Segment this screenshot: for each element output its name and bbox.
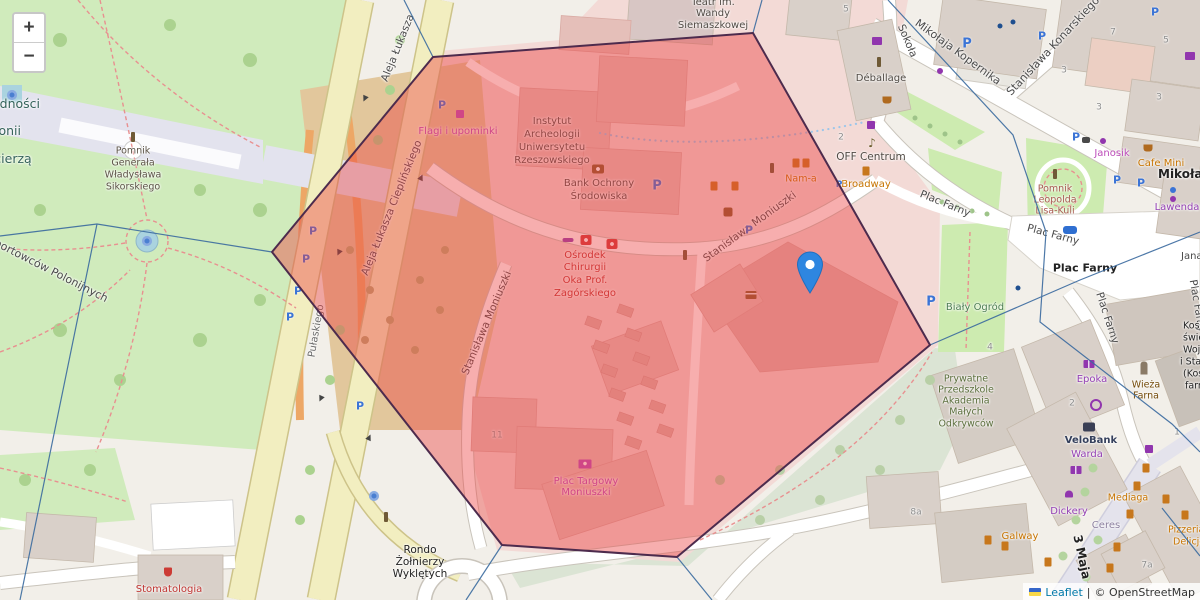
- restaurant-label-pizzeria: Delicje: [1173, 537, 1200, 547]
- house-number: 3: [1156, 94, 1162, 103]
- restaurant-icon: [1143, 464, 1150, 473]
- shop-label-flagi: Flagi i upominki: [418, 127, 497, 137]
- parking-icon: P: [309, 225, 317, 238]
- kindergarten-label: Przedszkole: [938, 385, 994, 395]
- fast-food-icon: [1134, 482, 1141, 491]
- attribution-bar: Leaflet | © OpenStreetMap: [1023, 583, 1200, 600]
- monument-icon: [384, 512, 388, 522]
- church-label: Wojciecha: [1183, 345, 1200, 355]
- fountain-icon: [7, 90, 17, 100]
- wine-bar-icon: [1107, 564, 1114, 573]
- shop-label-epoka: Epoka: [1077, 375, 1108, 385]
- roundabout-label: Żołnierzy: [396, 557, 445, 568]
- map-canvas[interactable]: edności lonii cierzą Pomnik Generała Wła…: [0, 0, 1200, 600]
- zoom-out-button[interactable]: −: [14, 42, 44, 71]
- restaurant-label-pizzeria: Pizzeria: [1168, 525, 1200, 535]
- bank-icon: [592, 165, 604, 174]
- poi-dot-icon: [1016, 286, 1021, 291]
- marketplace-icon: [579, 460, 592, 469]
- monument-icon: [770, 163, 774, 173]
- openstreetmap-link[interactable]: © OpenStreetMap: [1094, 586, 1195, 599]
- monument-icon: [877, 57, 881, 67]
- cafe-icon: [883, 97, 892, 104]
- shop-label-deballage: Déballage: [856, 74, 907, 84]
- pub-icon: [1127, 510, 1134, 519]
- first-aid-icon: [607, 239, 618, 249]
- dentist-icon: [164, 568, 172, 577]
- monument-icon: [131, 132, 135, 142]
- roundabout-label: Wyklętych: [393, 569, 448, 580]
- shop-label-dickery: Dickery: [1050, 507, 1088, 517]
- bookshop-icon: [1071, 466, 1082, 474]
- tower-label: Wieża: [1132, 380, 1160, 390]
- monument-icon: [1053, 169, 1057, 179]
- dentist-label: Stomatologia: [136, 585, 202, 595]
- parking-icon: P: [438, 99, 446, 112]
- house-number: 4: [987, 344, 993, 353]
- house-number: 3: [1061, 67, 1067, 76]
- bar-icon: [1163, 495, 1170, 504]
- poi-dot-icon: [1011, 20, 1016, 25]
- clinic-label: Ośrodek: [564, 251, 605, 261]
- clinic-label: Zagórskiego: [554, 289, 616, 299]
- park-name-fragment: cierzą: [0, 153, 32, 166]
- institute-label: Rzeszowskiego: [514, 156, 590, 166]
- parking-icon: P: [745, 224, 753, 237]
- fountain-icon: [142, 236, 152, 246]
- shop-label-warda: Warda: [1071, 450, 1103, 460]
- kindergarten-label: Akademia: [942, 396, 989, 406]
- parcel-locker-icon: [724, 208, 733, 217]
- parking-icon: P: [294, 285, 302, 298]
- shop-label-lawenda: Lawenda: [1155, 203, 1200, 213]
- garden-label-bialyogrod: Biały Ogród: [946, 303, 1004, 313]
- parking-icon: P: [652, 179, 662, 194]
- house-number: 8a: [910, 509, 921, 518]
- camera-shop-icon: [1082, 137, 1090, 143]
- market-label: Moniuszki: [561, 488, 610, 498]
- parking-icon: P: [1038, 30, 1046, 43]
- monument-label: Pomnik: [116, 146, 151, 156]
- venue-label-ceres: Ceres: [1092, 521, 1120, 531]
- parking-icon: P: [1072, 131, 1080, 144]
- monument-label-lisakuli: Lisa-Kuli: [1035, 206, 1074, 216]
- clothes-shop-icon: [1185, 52, 1195, 60]
- poi-dot-icon: [1170, 187, 1176, 193]
- church-label: i Stanisława: [1180, 357, 1200, 367]
- pub-label-broadway: Broadway: [841, 180, 891, 190]
- shop-dot-icon: [937, 68, 943, 74]
- optician-glasses-icon: [563, 238, 574, 242]
- market-label: Plac Targowy: [554, 477, 619, 487]
- restaurant-icon: [711, 182, 718, 191]
- institute-label: Instytut: [533, 117, 572, 127]
- ukraine-flag-icon: [1029, 588, 1041, 596]
- church-label: (Kościół: [1183, 369, 1200, 379]
- tower-label: Farna: [1133, 391, 1159, 401]
- parking-icon: P: [962, 37, 972, 52]
- shop-label-janosik: Janosik: [1094, 149, 1129, 159]
- clinic-label: Oka Prof.: [563, 276, 608, 286]
- monument-label: Władysława: [105, 170, 162, 180]
- tower-icon: [1141, 362, 1148, 375]
- street-label-mikolaja: Mikołaja: [1158, 168, 1200, 180]
- leaflet-link[interactable]: Leaflet: [1045, 586, 1082, 599]
- fountain-icon: [369, 491, 379, 501]
- restaurant-label-nama: Nam-a: [785, 174, 816, 184]
- shop-icon: [1145, 445, 1153, 453]
- street-label-jana: Jana: [1181, 252, 1200, 262]
- bookshop-icon: [1084, 360, 1095, 368]
- kindergarten-label: Prywatne: [944, 374, 988, 384]
- institute-label: Archeologii: [524, 130, 580, 140]
- zoom-control[interactable]: + −: [12, 12, 46, 73]
- parking-icon: P: [356, 400, 364, 413]
- post-box-icon: [746, 291, 757, 299]
- bank-label-velobank: VeloBank: [1065, 436, 1117, 446]
- parking-icon: P: [1113, 174, 1121, 187]
- institute-label: Uniwersytetu: [519, 143, 585, 153]
- park-name-fragment: edności: [0, 98, 40, 111]
- bicycle-parking-icon: P: [1137, 177, 1145, 190]
- parking-icon: P: [302, 253, 310, 266]
- restaurant-icon: [793, 159, 800, 168]
- venue-label-offcentrum: OFF Centrum: [836, 152, 905, 163]
- pub-icon: [1045, 558, 1052, 567]
- parking-icon: P: [286, 311, 294, 324]
- restaurant-label-mediaga: Mediaga: [1108, 493, 1148, 503]
- roundabout-label: Rondo: [404, 545, 437, 556]
- first-aid-icon: [581, 235, 592, 245]
- pub-icon: [1182, 511, 1189, 520]
- monument-label: Generała: [111, 158, 154, 168]
- bank-label: Bank Ochrony: [564, 179, 634, 189]
- square-label-placfarny: Plac Farny: [1053, 263, 1117, 274]
- jewelry-shop-icon: [1090, 399, 1102, 411]
- theatre-label: Wandy: [696, 9, 730, 19]
- bakery-icon: [1065, 491, 1073, 498]
- house-number: 7: [1110, 29, 1116, 38]
- house-number: 3: [1096, 104, 1102, 113]
- shop-dot-icon: [1170, 196, 1176, 202]
- bank-label: Środowiska: [571, 192, 628, 202]
- restaurant-icon: [985, 536, 992, 545]
- restaurant-icon: [732, 182, 739, 191]
- pub-label-galway: Galway: [1002, 532, 1039, 542]
- house-number: 1: [1174, 429, 1180, 438]
- bank-icon: [1083, 423, 1095, 432]
- gift-shop-icon: [456, 110, 464, 118]
- house-number: 2: [838, 134, 844, 143]
- monument-label-lisakuli: Pomnik: [1038, 184, 1073, 194]
- house-number: 5: [843, 6, 849, 15]
- monument-icon: [683, 250, 687, 260]
- attribution-separator: |: [1087, 586, 1091, 599]
- house-number: 7a: [1141, 562, 1152, 571]
- house-number: 2: [1069, 400, 1075, 409]
- theatre-label: Siemaszkowej: [678, 21, 748, 31]
- kindergarten-label: Odkrywców: [938, 419, 993, 429]
- music-venue-icon: ♪: [868, 136, 876, 150]
- shop-dot-icon: [1100, 138, 1106, 144]
- taxi-icon: [1063, 226, 1077, 234]
- kindergarten-label: Małych: [949, 407, 983, 417]
- parking-icon: P: [836, 180, 843, 190]
- zoom-in-button[interactable]: +: [14, 14, 44, 42]
- cafe-icon: [1144, 145, 1153, 152]
- monument-label: Sikorskiego: [106, 182, 160, 192]
- church-label: świętych: [1183, 333, 1200, 343]
- theatre-label: Teatr im.: [691, 0, 735, 8]
- house-number: 5: [1163, 37, 1169, 46]
- poi-dot-icon: [998, 24, 1003, 29]
- pub-icon: [863, 167, 870, 176]
- handbag-shop-icon: [867, 121, 875, 129]
- house-number: 11: [491, 432, 502, 441]
- cafe-icon: [1114, 543, 1121, 552]
- pub-icon: [1002, 542, 1009, 551]
- church-label: Kościół: [1183, 321, 1200, 331]
- restaurant-icon: [803, 159, 810, 168]
- park-name-fragment: lonii: [0, 125, 21, 138]
- parking-icon: P: [926, 295, 936, 310]
- church-label: farny): [1185, 381, 1200, 391]
- monument-label-lisakuli: Leopolda: [1033, 195, 1076, 205]
- parking-icon: P: [1151, 6, 1159, 19]
- clothes-shop-icon: [872, 37, 882, 45]
- clinic-label: Chirurgii: [564, 263, 606, 273]
